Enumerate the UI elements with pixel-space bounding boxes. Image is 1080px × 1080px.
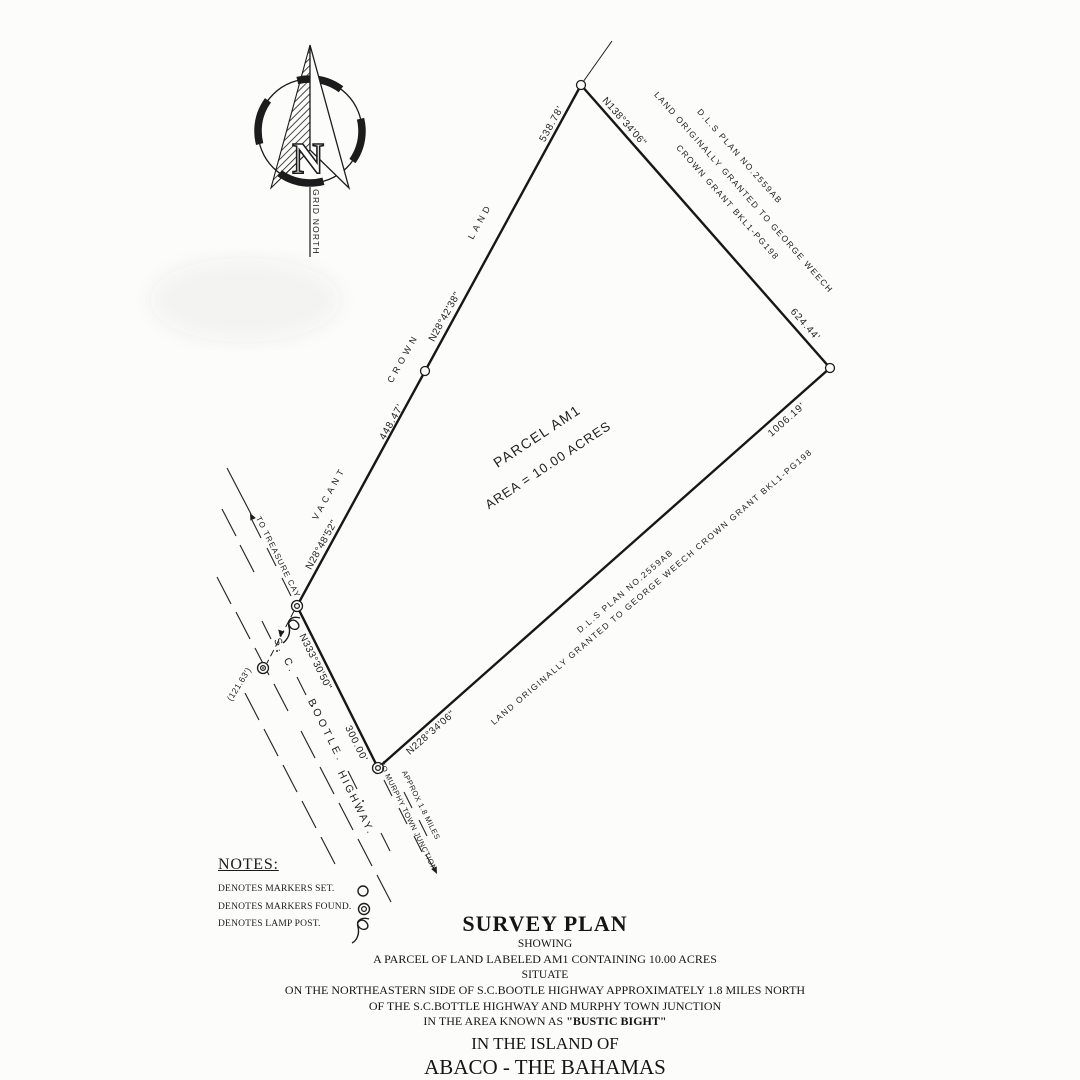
plan-island-line: IN THE ISLAND OF	[230, 1034, 860, 1054]
title-block: SURVEY PLAN SHOWING A PARCEL OF LAND LAB…	[230, 912, 860, 1079]
marker-found-west-inner	[295, 604, 300, 609]
legend-found-icon-inner	[362, 907, 367, 912]
plan-situate: SITUATE	[230, 968, 860, 984]
plan-description-1: A PARCEL OF LAND LABELED AM1 CONTAINING …	[230, 952, 860, 968]
scan-smudge	[150, 258, 340, 342]
compass-n-letter: N	[292, 134, 324, 183]
marker-found-offset-dot	[262, 667, 264, 669]
grid-north-label: GRID NORTH	[311, 189, 321, 255]
legend-set-icon	[358, 886, 368, 896]
marker-set-east	[826, 364, 835, 373]
notes-title: NOTES:	[218, 856, 351, 874]
area-name-bold: "BUSTIC BIGHT"	[566, 1014, 666, 1028]
area-known-as-text: IN THE AREA KNOWN AS	[423, 1014, 566, 1028]
marker-set-north	[577, 81, 586, 90]
plan-description-4: IN THE AREA KNOWN AS "BUSTIC BIGHT"	[230, 1014, 860, 1030]
plan-showing: SHOWING	[230, 937, 860, 952]
plan-title: SURVEY PLAN	[230, 912, 860, 936]
survey-plan-sheet: N	[0, 0, 1080, 1080]
notes-item-set: DENOTES MARKERS SET.	[218, 881, 351, 899]
boundary-extension-north	[583, 41, 612, 82]
plan-place-line: ABACO - THE BAHAMAS	[230, 1055, 860, 1079]
marker-set-west-mid	[421, 367, 430, 376]
plan-description-3: OF THE S.C.BOTTLE HIGHWAY AND MURPHY TOW…	[230, 999, 860, 1015]
plan-description-2: ON THE NORTHEASTERN SIDE OF S.C.BOOTLE H…	[230, 983, 860, 999]
compass-rose: N	[258, 45, 362, 257]
